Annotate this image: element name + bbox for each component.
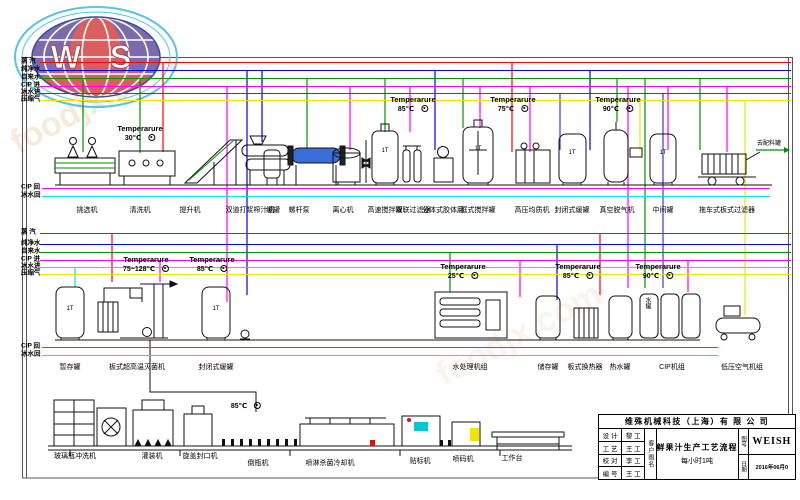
- thermometer-icon: [471, 272, 478, 279]
- eq-closed-buffer-tank-2: [202, 287, 250, 340]
- water-tank-label: 水罐: [644, 297, 650, 309]
- eq-buffer-tank-small: [264, 150, 280, 185]
- valve-cluster: [362, 140, 370, 183]
- temperature-title: Temperarure: [595, 95, 640, 104]
- temperature-value: 30℃: [117, 133, 162, 144]
- pipe-label: 纯净水: [21, 240, 41, 247]
- temperature-title: Temperarure: [123, 255, 169, 264]
- pipe-label: CIP 回: [21, 343, 40, 350]
- temperature-value: 85℃: [555, 271, 600, 282]
- eq-sorting-machine: [55, 138, 115, 186]
- pipe-line: [42, 355, 718, 356]
- equipment-label: 离心机: [333, 207, 354, 214]
- eq-washing-machine: [119, 151, 175, 185]
- temperature-title: Temperarure: [555, 262, 600, 271]
- pipe-label: 蒸 汽: [21, 58, 36, 65]
- temperature-marker: Temperarure 85℃: [189, 255, 234, 275]
- titleblock-values: 黎 工 王 工 李 工 王 工: [622, 429, 645, 479]
- temperature-marker: Temperarure 85℃: [390, 95, 435, 115]
- eq-high-speed-mixing-tank: [372, 124, 398, 185]
- pipe-label: 冰水回: [21, 351, 41, 358]
- eq-uht-sterilizer: [98, 281, 177, 338]
- eq-water-treatment-unit: [435, 292, 507, 338]
- temperature-marker: Temperarure 25℃: [440, 262, 485, 282]
- thermometer-icon: [162, 265, 169, 272]
- tb-key: 工 艺: [599, 442, 622, 455]
- tb-key: 设 计: [599, 429, 622, 442]
- eq-screw-pump: [288, 146, 345, 185]
- drawing-no-date: WEISH 2016年06月0: [749, 429, 795, 479]
- pipe-line: [40, 86, 791, 87]
- eq-high-pressure-homogenizer: [516, 143, 550, 183]
- eq-spray-cooler: [300, 418, 394, 446]
- equipment-label: 喷淋杀菌冷却机: [306, 460, 355, 467]
- temperature-marker: Temperarure 75~128℃: [123, 255, 169, 275]
- eq-capping-machine: [184, 406, 212, 446]
- equipment-label: 框式搅拌罐: [461, 207, 496, 214]
- drawing-title-line1: 鲜果汁生产工艺流程: [657, 442, 738, 453]
- equipment-label: CIP机组: [659, 364, 685, 371]
- temperature-marker: Temperarure 75℃: [490, 95, 535, 115]
- thermometer-icon: [626, 105, 633, 112]
- equipment-label: 水处理机组: [453, 364, 488, 371]
- temperature-value: 90℃: [595, 104, 640, 115]
- temperature-title: Temperarure: [390, 95, 435, 104]
- temperature-title: Temperarure: [635, 262, 680, 271]
- thermometer-icon: [586, 272, 593, 279]
- tb-value: 王 工: [622, 467, 645, 479]
- equipment-label: 真空脱气机: [600, 207, 635, 214]
- equipment-label: 中间罐: [653, 207, 674, 214]
- temperature-title: Temperarure: [117, 124, 162, 133]
- drawing-number: WEISH: [749, 429, 795, 455]
- no-date-col: 图号 日期: [739, 429, 749, 479]
- thermometer-icon: [521, 105, 528, 112]
- equipment-label: 玻璃瓶冲洗机: [54, 453, 96, 460]
- tank-capacity-label: 1T: [381, 148, 388, 154]
- temperature-value: 85℃: [189, 264, 234, 275]
- tank-capacity-label: 1T: [66, 306, 73, 312]
- eq-vacuum-degasser: [604, 122, 642, 185]
- pipe-label: 自来水: [21, 74, 41, 81]
- equipment-label: 封闭式缓罐: [555, 207, 590, 214]
- equipment-label: 储存罐: [538, 364, 559, 371]
- pipe-line: [42, 188, 770, 189]
- thermometer-icon: [666, 272, 673, 279]
- eq-trailer-plate-filter: [698, 152, 760, 185]
- tb-key: 校 对: [599, 455, 622, 468]
- bottles-inverter: [222, 439, 451, 446]
- equipment-label: 提升机: [180, 207, 201, 214]
- pipe-line: [42, 196, 770, 197]
- eq-closed-buffer-tank-1: [559, 134, 586, 185]
- company-name: 维殊机械科技（上海）有 限 公 司: [599, 415, 795, 429]
- eq-hot-water-tank: [609, 296, 632, 340]
- temperature-value: 75~128℃: [123, 264, 169, 275]
- equipment-label: 板式超高温灭菌机: [109, 364, 165, 371]
- equipment-label: 暂存罐: [60, 364, 81, 371]
- pipe-label: 蒸 汽: [21, 229, 36, 236]
- thermometer-icon: [220, 265, 227, 272]
- equipment-label: 低压空气机组: [721, 364, 763, 371]
- tank-capacity-label: 1T: [474, 146, 481, 152]
- pipe-line: [40, 62, 791, 63]
- equipment-label: 螺杆泵: [289, 207, 310, 214]
- tb-value: 黎 工: [622, 429, 645, 442]
- eq-holding-tank: [56, 287, 84, 340]
- pipe-line: [40, 233, 791, 234]
- eq-work-table: [492, 432, 564, 450]
- pipe-line: [40, 244, 791, 245]
- customer-drawing-col: 客户图名: [645, 429, 656, 479]
- tb-value: 王 工: [622, 442, 645, 455]
- tb-value: 李 工: [622, 455, 645, 468]
- eq-duplex-filter: [403, 146, 421, 182]
- temperature-value: 25℃: [440, 271, 485, 282]
- temperature-marker: Temperarure 90℃: [635, 262, 680, 282]
- eq-inkjet-coder: [452, 422, 480, 446]
- drawing-title-line2: 每小时1吨: [681, 456, 713, 466]
- pipe-label: 自来水: [21, 248, 41, 255]
- tank-capacity-label: 1T: [212, 306, 219, 312]
- eq-low-pressure-air-unit: [716, 306, 760, 340]
- pipe-label: 压缩气: [21, 270, 41, 277]
- temperature-value: 90℃: [635, 271, 680, 282]
- equipment-label: 清洗机: [130, 207, 151, 214]
- equipment-label: 分体式胶体磨: [422, 207, 464, 214]
- equipment-label: 贴标机: [410, 458, 431, 465]
- eq-elevator: [185, 140, 242, 185]
- tank-capacity-label: 1T: [659, 150, 666, 156]
- temperature-marker: Temperarure 90℃: [595, 95, 640, 115]
- equipment-label: 旋盖封口机: [183, 453, 218, 460]
- drawing-date: 2016年06月0: [749, 455, 795, 480]
- pipe-label: 纯净水: [21, 66, 41, 73]
- title-block: 维殊机械科技（上海）有 限 公 司 设 计 工 艺 校 对 编 号 黎 工 王 …: [598, 414, 796, 480]
- eq-colloid-mill: [434, 147, 453, 183]
- equipment-label: 工作台: [502, 455, 523, 462]
- temperature-marker: 85℃: [231, 401, 261, 412]
- drawing-title: 鲜果汁生产工艺流程 每小时1吨: [657, 429, 739, 479]
- process-flow-drawing: foodjx.com foodjx.com: [0, 0, 800, 500]
- equipment-label: 板式换热器: [568, 364, 603, 371]
- temperature-title: Temperarure: [440, 262, 485, 271]
- equipment-label: 拖车式板式过滤器: [699, 207, 755, 214]
- tb-key: 编 号: [599, 467, 622, 479]
- tank-capacity-label: 1T: [568, 150, 575, 156]
- pipe-label: CIP 回: [21, 184, 40, 191]
- eq-filling-machine: [133, 400, 173, 446]
- temperature-value: 75℃: [490, 104, 535, 115]
- temperature-title: Temperarure: [189, 255, 234, 264]
- equipment-label: 缓罐: [266, 207, 280, 214]
- pipe-line: [42, 347, 718, 348]
- equipment-label: 挑选机: [77, 207, 98, 214]
- equipment-label: 热水罐: [610, 364, 631, 371]
- to-mixing-tank-label: 去配料罐: [757, 141, 781, 147]
- equipment-label: 封闭式缓罐: [199, 364, 234, 371]
- eq-bottom-conveyor: [48, 446, 572, 456]
- pipe-label: 压缩气: [21, 96, 41, 103]
- thermometer-icon: [148, 134, 155, 141]
- thermometer-icon: [421, 105, 428, 112]
- pipe-label: 冰水回: [21, 192, 41, 199]
- titleblock-keys: 设 计 工 艺 校 对 编 号: [599, 429, 622, 479]
- equipment-label: 灌装机: [142, 453, 163, 460]
- eq-plate-heat-exchanger: [574, 308, 598, 338]
- eq-labeling-machine: [402, 416, 440, 446]
- eq-storage-tank: [536, 296, 560, 340]
- pipe-line: [40, 252, 791, 253]
- equipment-label: 倒瓶机: [248, 460, 269, 467]
- outfeed-line: [756, 147, 790, 153]
- temperature-value: 85℃: [390, 104, 435, 115]
- thermometer-icon: [254, 402, 261, 409]
- equipment-label: 喷码机: [453, 456, 474, 463]
- eq-frame-mixing-tank: [463, 120, 493, 185]
- temperature-title: Temperarure: [490, 95, 535, 104]
- eq-bottle-rinser: [54, 400, 126, 446]
- pipe-line: [40, 78, 791, 79]
- pipe-line: [40, 70, 791, 71]
- temperature-marker: Temperarure 85℃: [555, 262, 600, 282]
- temperature-marker: Temperarure 30℃: [117, 124, 162, 144]
- equipment-label: 高压均质机: [515, 207, 550, 214]
